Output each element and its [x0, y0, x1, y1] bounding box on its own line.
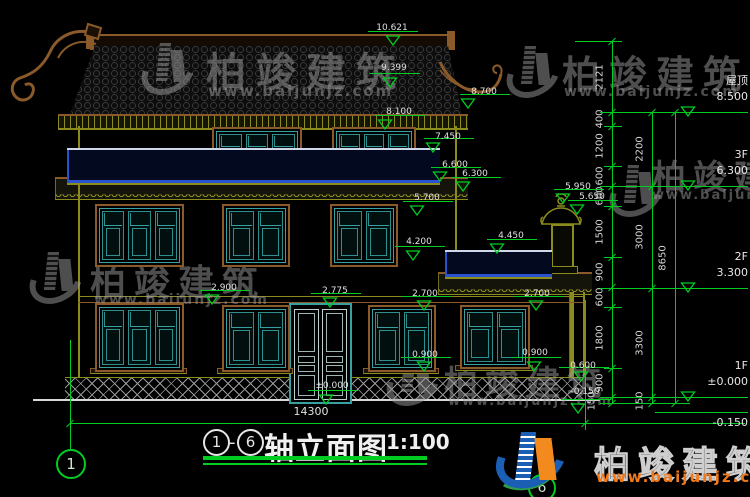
- watermark-logo: [140, 43, 196, 95]
- floor-level-line: [655, 412, 748, 413]
- elevation-marker-triangle: [573, 367, 589, 386]
- balcony-railing-3f: [67, 148, 440, 183]
- elevation-marker-triangle: [322, 293, 338, 312]
- lattice-window: [330, 204, 398, 267]
- elevation-marker-triangle: [425, 138, 441, 157]
- dimension-value: 1800: [595, 325, 606, 350]
- dimension-chain-line: [612, 41, 613, 403]
- watermark-logo: [28, 252, 84, 304]
- dimension-value: 1200: [595, 133, 606, 158]
- drawing-title: 轴立面图: [264, 424, 388, 468]
- floor-elevation: 6.300: [690, 165, 748, 177]
- elevation-marker-triangle: [526, 357, 542, 376]
- axis1-extension-line: [70, 340, 71, 450]
- elevation-marker-triangle: [204, 290, 220, 309]
- dimension-tie-line: [600, 112, 680, 113]
- floor-level-triangle: [680, 278, 696, 297]
- lattice-window: [222, 204, 290, 267]
- dimension-chain-line: [652, 112, 653, 403]
- title-underline-thick: [203, 456, 427, 460]
- elevation-marker-label: 9.399: [381, 63, 407, 73]
- floor-name: 屋顶: [690, 75, 748, 87]
- elevation-marker-triangle: [405, 246, 421, 265]
- lattice-window: [460, 305, 530, 369]
- floor-level-triangle: [680, 176, 696, 195]
- dimension-value: 2121: [595, 64, 606, 89]
- dimension-tie-line: [604, 368, 622, 369]
- title-axis-start: 1: [203, 429, 230, 456]
- brand-logo: [492, 430, 587, 490]
- roof-ridge-cap-right: [447, 31, 455, 49]
- dimension-value: 600: [595, 166, 606, 185]
- elevation-marker-triangle: [528, 296, 544, 315]
- dimension-value: 1500: [595, 219, 606, 244]
- dimension-value: 8650: [658, 245, 669, 270]
- dimension-tie-line: [600, 397, 690, 398]
- dimension-tie-line: [600, 403, 690, 404]
- dimension-value: 600: [595, 287, 606, 306]
- elevation-marker-triangle: [416, 296, 432, 315]
- title-underline-thin: [203, 463, 427, 465]
- elevation-marker-triangle: [318, 390, 334, 409]
- drawing-scale: 1:100: [386, 430, 450, 454]
- dimension-tie-line: [604, 126, 622, 127]
- elevation-marker-triangle: [377, 115, 393, 134]
- watermark-url: www.baijunjz.com: [208, 82, 393, 100]
- floor-elevation: 8.500: [690, 91, 748, 103]
- dimension-chain-line: [675, 112, 676, 403]
- floor-level-triangle: [680, 102, 696, 121]
- elevation-marker-triangle: [385, 31, 401, 50]
- elevation-marker-label: -0.150: [570, 387, 599, 397]
- elevation-marker-triangle: [382, 73, 398, 92]
- elevation-marker-triangle: [460, 94, 476, 113]
- floor-elevation: -0.150: [690, 417, 748, 429]
- watermark-url: www.baijunjz.com: [652, 188, 750, 203]
- lattice-window: [95, 204, 184, 267]
- floor-elevation: ±0.000: [690, 376, 748, 388]
- floor-name: 2F: [690, 251, 748, 263]
- dimension-tie-line: [604, 307, 622, 308]
- dimension-tie-line: [604, 257, 622, 258]
- dimension-value: 3000: [635, 224, 646, 249]
- title-dash: -: [229, 432, 236, 453]
- dimension-value: 2200: [635, 136, 646, 161]
- dimension-value: 900: [595, 262, 606, 281]
- dimension-value: 3300: [635, 330, 646, 355]
- lattice-window: [222, 305, 290, 372]
- elevation-marker-triangle: [432, 167, 448, 186]
- elevation-marker-triangle: [570, 399, 586, 418]
- watermark-logo: [505, 46, 561, 98]
- overall-dimension-line: [70, 423, 745, 424]
- axis-bubble-1: 1: [56, 449, 86, 479]
- floor-name: 1F: [690, 360, 748, 372]
- dimension-tie-line: [600, 288, 680, 289]
- elevation-marker-triangle: [455, 177, 471, 196]
- elevation-marker-triangle: [569, 200, 585, 219]
- brand-url: www.baijunjz.com: [596, 468, 750, 486]
- dimension-tie-line: [600, 186, 680, 187]
- title-axis-end: 6: [237, 429, 264, 456]
- elevation-marker-line: [561, 399, 611, 400]
- floor-elevation: 3.300: [690, 267, 748, 279]
- elevation-marker-triangle: [409, 201, 425, 220]
- cad-elevation-canvas: 14300 1 6 1 - 6 轴立面图 1:100 柏竣建筑 www.baij…: [0, 0, 750, 497]
- chimney-body: [551, 224, 574, 272]
- roof-ornament-left: [4, 18, 104, 118]
- dimension-tie-line: [575, 41, 622, 42]
- elevation-marker-triangle: [416, 357, 432, 376]
- lattice-window: [95, 303, 184, 372]
- elevation-marker-triangle: [489, 239, 505, 258]
- dimension-value: 150: [635, 391, 646, 410]
- dimension-tie-line: [604, 166, 622, 167]
- floor-name: 3F: [690, 149, 748, 161]
- dimension-tie-line: [604, 206, 622, 207]
